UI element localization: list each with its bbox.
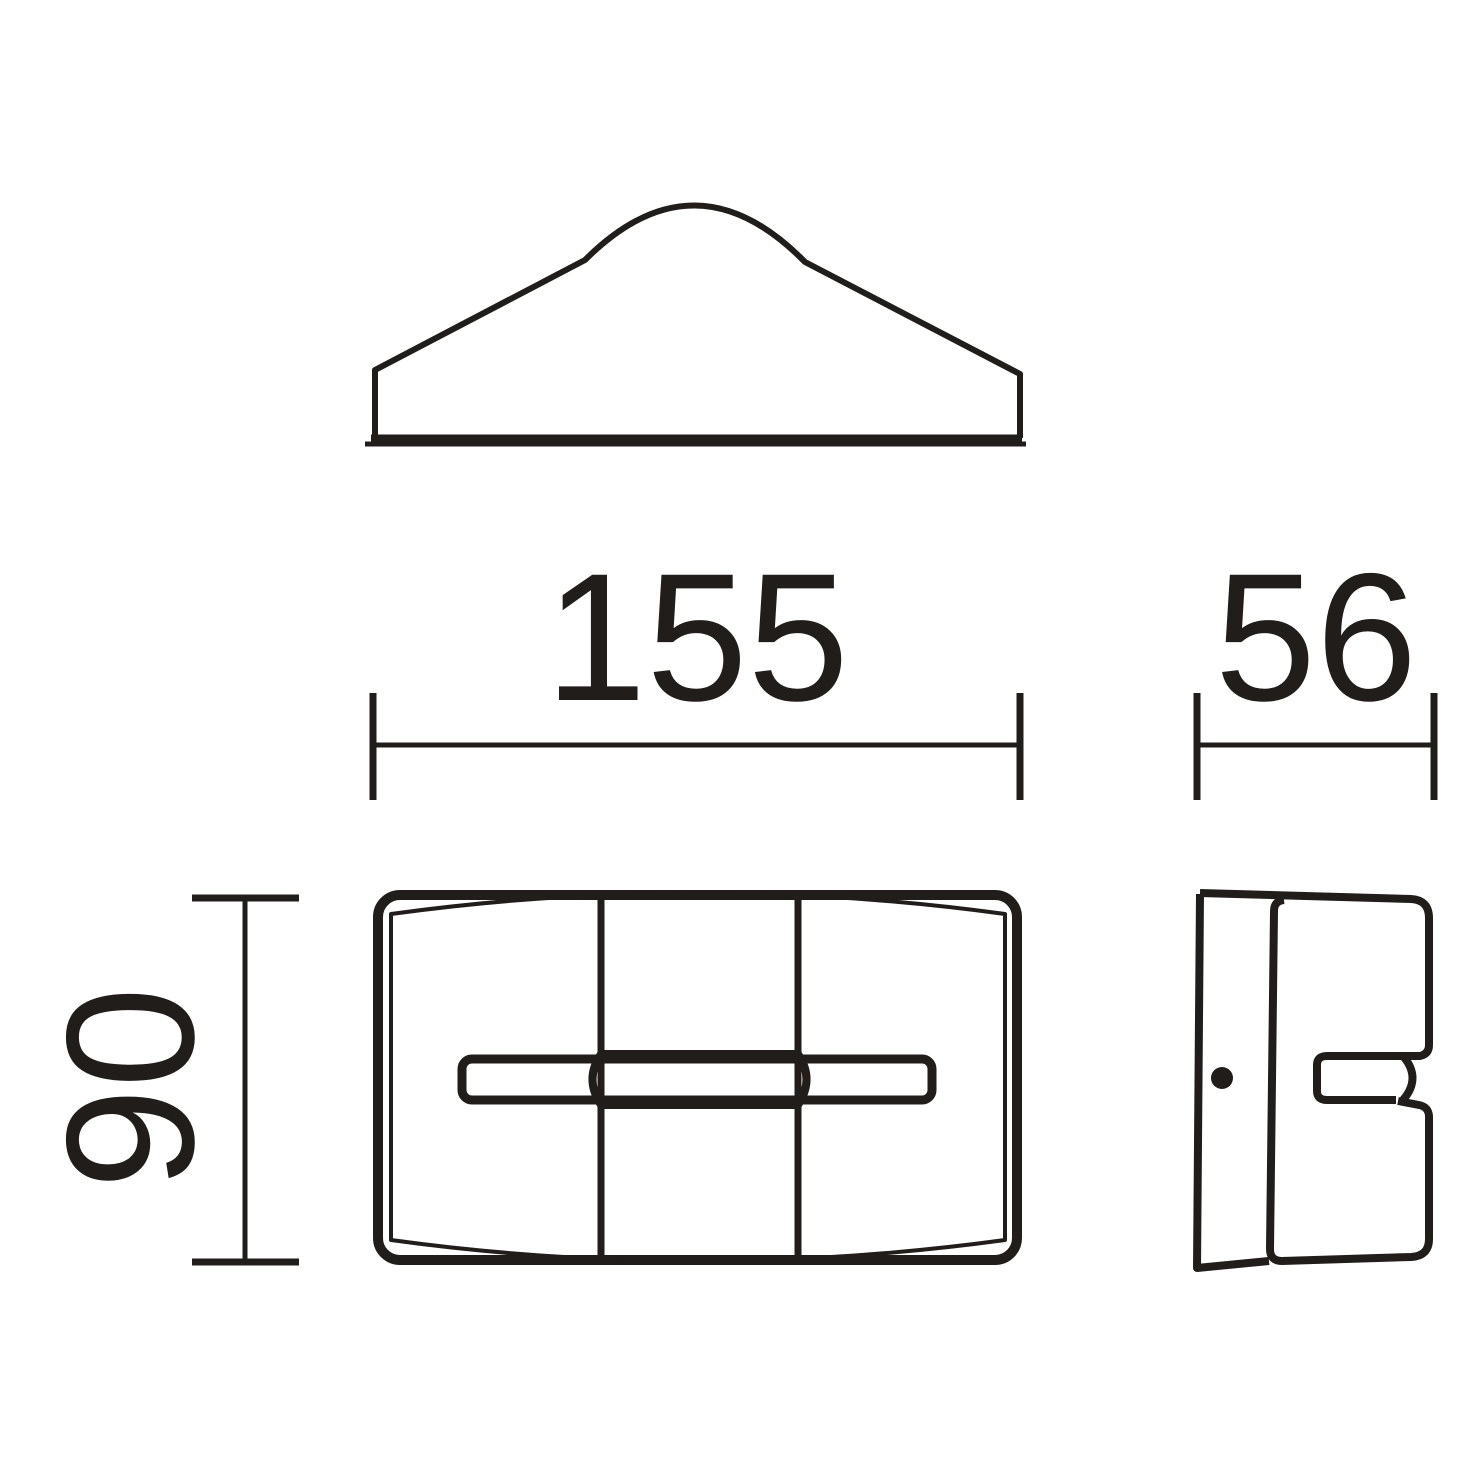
side-view-diffuser-arc — [1403, 1056, 1413, 1100]
line-work: 155 56 90 — [28, 205, 1434, 1268]
side-view — [1197, 893, 1429, 1268]
height-dimension-label: 90 — [28, 987, 232, 1189]
side-view-screw-hole — [1211, 1067, 1233, 1089]
depth-dimension-label: 56 — [1215, 535, 1417, 739]
front-view — [378, 893, 1017, 1261]
width-dimension-label: 155 — [545, 535, 849, 739]
height-dimension: 90 — [28, 898, 299, 1262]
width-dimension: 155 — [373, 535, 1020, 800]
front-view-outline — [378, 895, 1017, 1260]
top-view-outline — [375, 205, 1020, 438]
side-view-back-plate — [1197, 894, 1269, 1268]
front-view-light-bar — [462, 1059, 932, 1100]
depth-dimension: 56 — [1197, 535, 1434, 800]
drawing-canvas: 155 56 90 — [0, 0, 1476, 1476]
dimension-drawing: 155 56 90 — [0, 0, 1476, 1476]
side-view-body-lower-outline — [1270, 900, 1429, 1261]
top-view — [365, 205, 1026, 444]
front-view-inner-contour — [391, 893, 1005, 1261]
side-view-body-upper-outline — [1200, 893, 1429, 1100]
